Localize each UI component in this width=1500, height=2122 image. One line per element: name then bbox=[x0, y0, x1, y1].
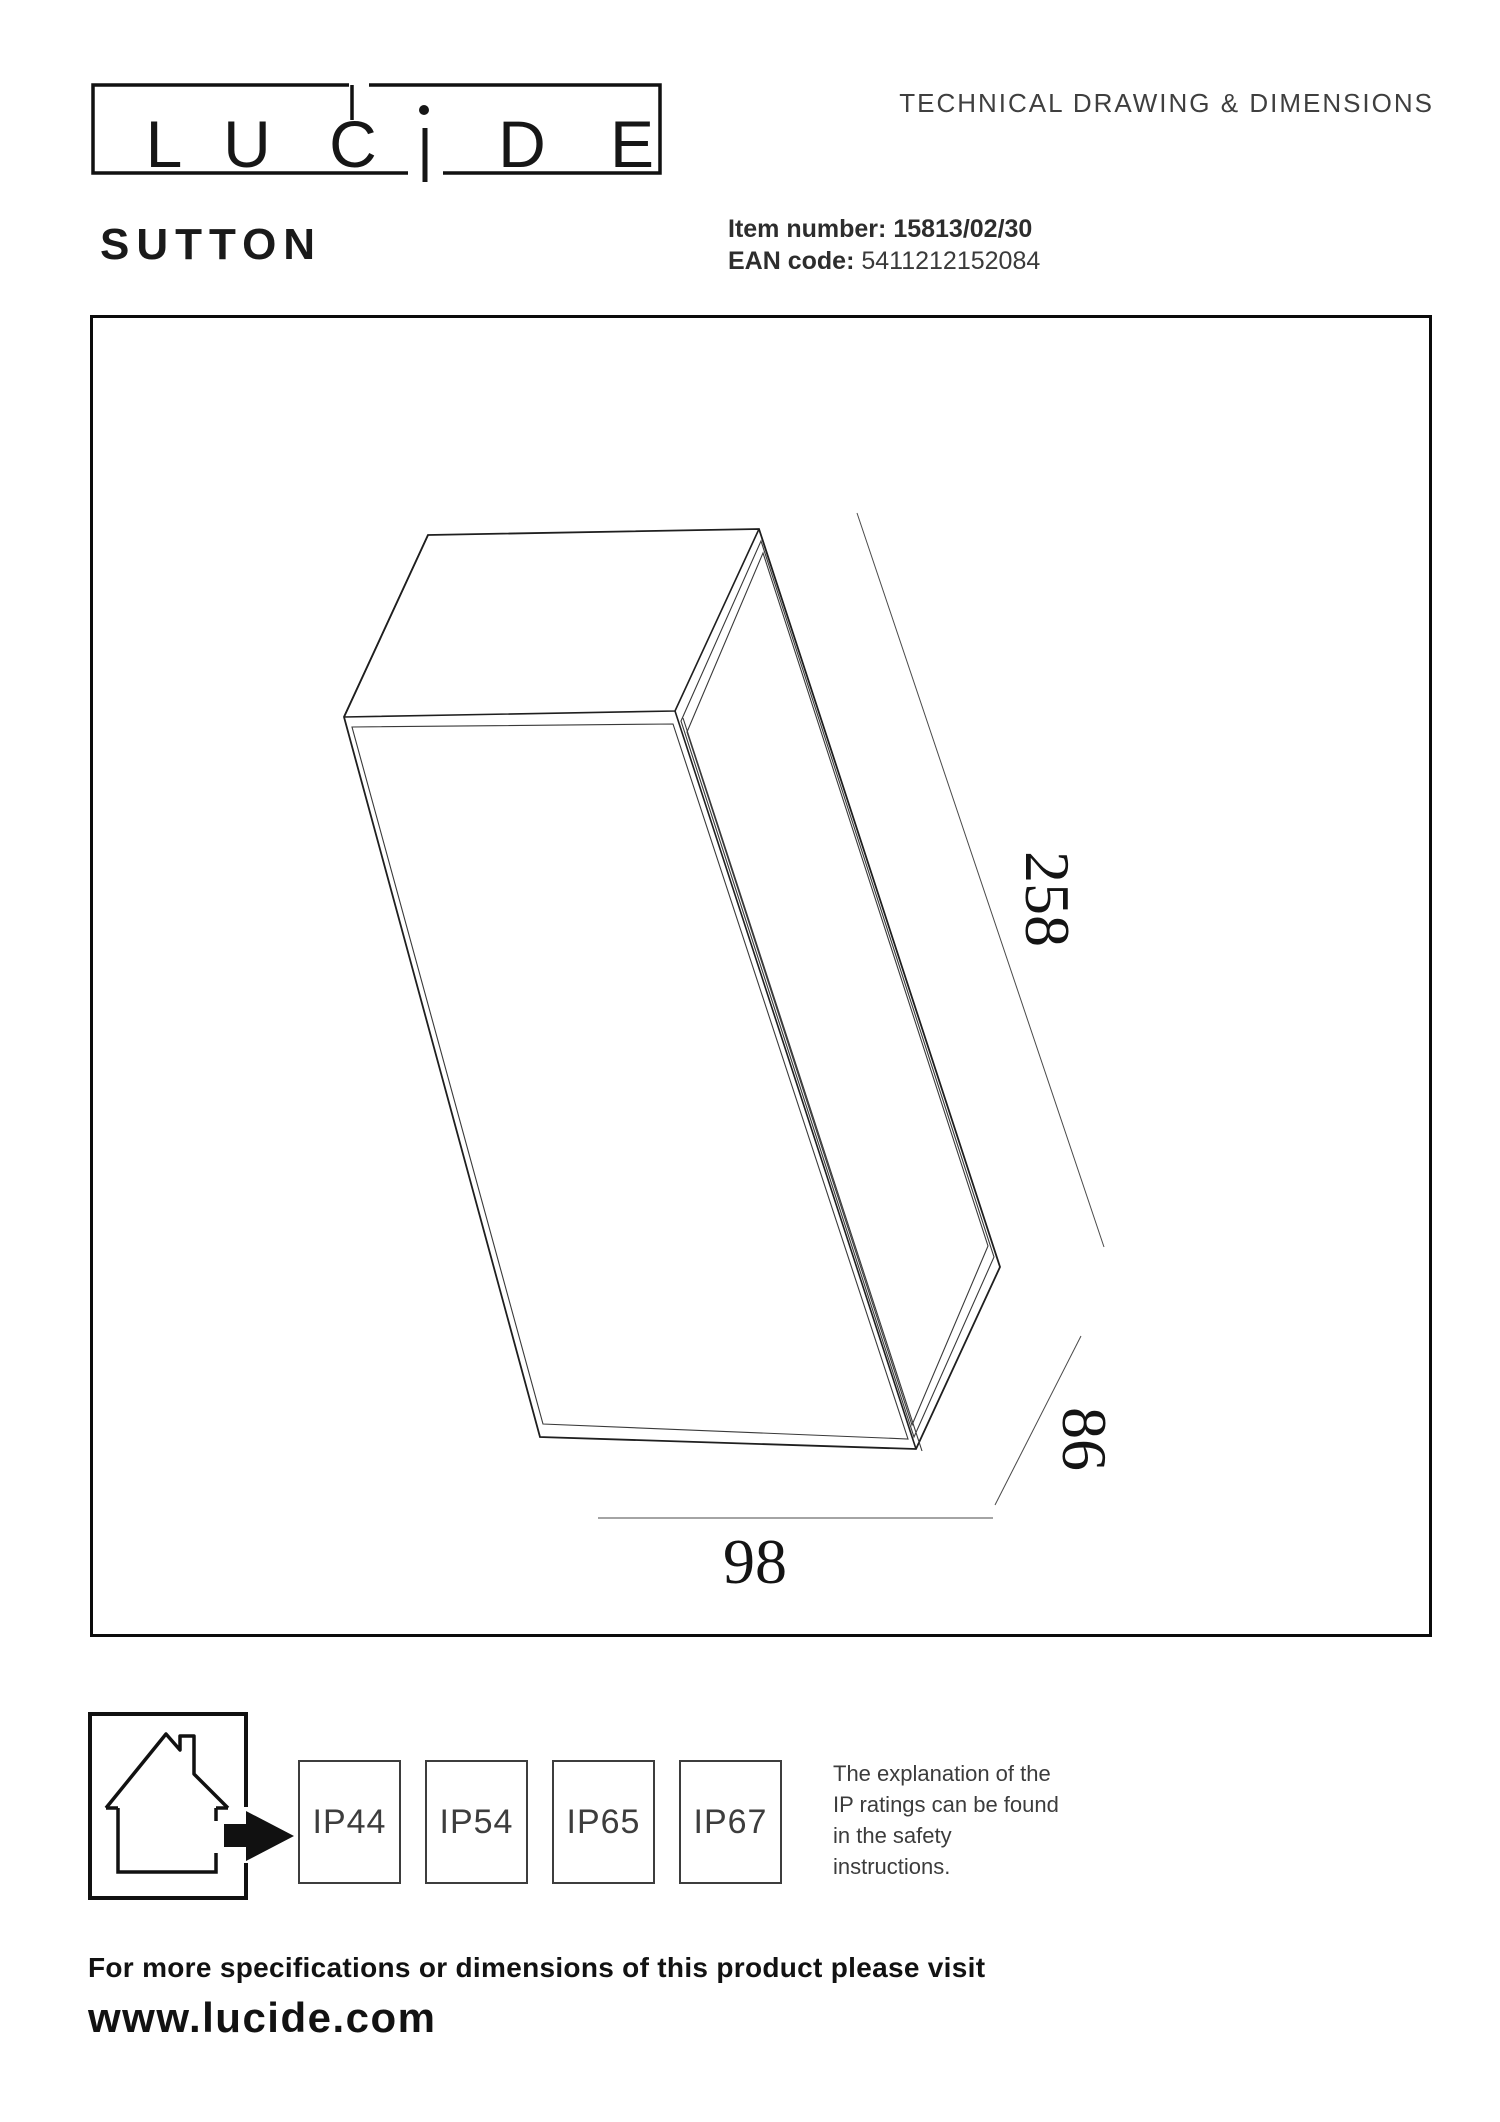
box-front-arris bbox=[675, 711, 916, 1449]
logo-letter-c: C bbox=[329, 107, 377, 181]
website-link[interactable]: www.lucide.com bbox=[88, 1994, 437, 2042]
ean-row: EAN code: 5411212152084 bbox=[728, 245, 1040, 277]
logo-letter-e: E bbox=[610, 107, 654, 181]
item-number-row: Item number: 15813/02/30 bbox=[728, 213, 1040, 245]
ip-badge-label: IP44 bbox=[313, 1803, 387, 1842]
dim-label-length: 258 bbox=[1012, 851, 1083, 947]
item-number-label: Item number: bbox=[728, 215, 886, 243]
right-face-panel-outer bbox=[681, 541, 994, 1437]
ip-badge-label: IP54 bbox=[440, 1803, 514, 1842]
product-isometric-drawing: 258 86 98 bbox=[93, 318, 1429, 1634]
product-codes: Item number: 15813/02/30 EAN code: 54112… bbox=[728, 213, 1040, 277]
spec-sheet-page: L U C D E TECHNICAL DRAWING & DIMENSIONS… bbox=[0, 0, 1500, 2122]
front-face-inset-frame bbox=[352, 724, 908, 1439]
item-number-value: 15813/02/30 bbox=[893, 215, 1032, 243]
ip-note-line: in the safety bbox=[833, 1820, 1059, 1851]
box-front-arris-inner bbox=[683, 718, 922, 1451]
logo-letter-d: D bbox=[498, 107, 546, 181]
house-walls bbox=[106, 1808, 228, 1872]
technical-drawing-frame: 258 86 98 bbox=[90, 315, 1432, 1637]
logo-letter-u: U bbox=[223, 107, 271, 181]
ip-badge-ip65: IP65 bbox=[552, 1760, 655, 1884]
lucide-logo: L U C D E bbox=[90, 82, 663, 192]
ip-note: The explanation of the IP ratings can be… bbox=[833, 1758, 1059, 1882]
box-silhouette bbox=[344, 529, 1000, 1449]
dim-label-depth: 86 bbox=[1049, 1407, 1120, 1471]
footer-note: For more specifications or dimensions of… bbox=[88, 1952, 985, 1984]
arrow-right-icon bbox=[224, 1811, 294, 1861]
dim-label-width: 98 bbox=[723, 1526, 787, 1597]
logo-letter-i bbox=[419, 105, 429, 182]
doc-title: TECHNICAL DRAWING & DIMENSIONS bbox=[899, 88, 1434, 119]
ip-note-line: instructions. bbox=[833, 1851, 1059, 1882]
ip-badge-ip44: IP44 bbox=[298, 1760, 401, 1884]
product-name: SUTTON bbox=[100, 220, 322, 270]
right-face-panel-inner bbox=[687, 553, 988, 1425]
ip-badge-label: IP65 bbox=[567, 1803, 641, 1842]
box-top-face-edges bbox=[344, 529, 759, 717]
house-roof bbox=[106, 1734, 228, 1808]
ip-badge-label: IP67 bbox=[694, 1803, 768, 1842]
logo-letter-l: L bbox=[146, 107, 183, 181]
indoor-use-house-icon bbox=[88, 1712, 298, 1902]
ean-value: 5411212152084 bbox=[861, 247, 1040, 275]
ip-badge-ip67: IP67 bbox=[679, 1760, 782, 1884]
ean-label: EAN code: bbox=[728, 247, 854, 275]
ip-note-line: IP ratings can be found bbox=[833, 1789, 1059, 1820]
ip-badge-ip54: IP54 bbox=[425, 1760, 528, 1884]
ip-note-line: The explanation of the bbox=[833, 1758, 1059, 1789]
